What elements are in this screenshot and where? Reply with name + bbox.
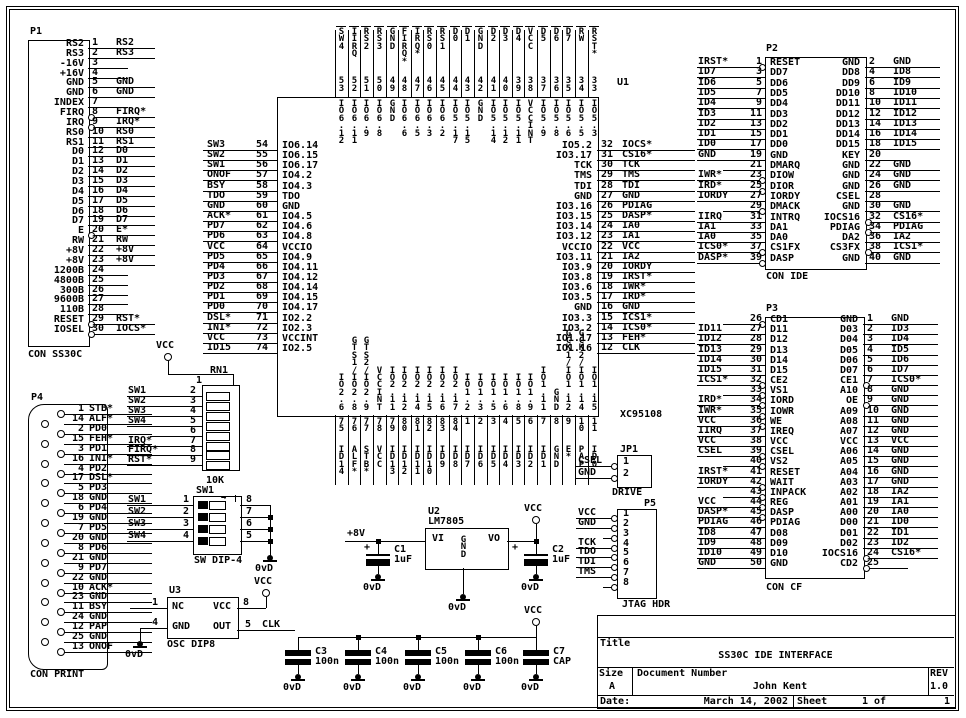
document-number-value: John Kent [632,682,928,692]
p5-pin-net: TMS [578,567,596,577]
rn1-resistor [206,442,230,451]
ground-net-label: 0vD [255,564,273,574]
u1-bottom-pin-net: I D 9 [437,447,448,469]
sw1-switch-actuator [198,501,208,509]
rn1-pin-net: RST* [128,455,152,465]
p3-refdes: P3 [766,304,778,314]
u3-gnd-wire [140,628,167,629]
p4-pin-hole [41,579,49,587]
p5-pin-bubble [611,515,618,522]
p1-pin-net: +8V [116,255,134,265]
p2-right-net: GND [893,170,911,180]
vcc-net-label: VCC [156,341,174,351]
p2-left-net: IWR* [698,170,722,180]
u3-vcc-pin-name: VCC [197,602,231,612]
p4-pin-hole [41,499,49,507]
u1-top-pin-name: I O 5 . 6 [563,101,574,138]
u1-right-pin-name: TMS [520,171,592,181]
jp1-pin-number: 2 [623,469,629,479]
u2-input-wire [345,541,425,542]
p2-left-net: IORDY [698,191,728,201]
u1-top-pin-number: 4 3 [462,78,473,93]
u1-bottom-pin-name: I O 1 . 1 1 [538,368,549,412]
u1-bottom-pin-number: 1 1 [589,419,600,434]
p2-left-pin-number: 17 [736,139,762,149]
u1-top-pin-number: 4 5 [437,78,448,93]
jp1-part-name: DRIVE [612,488,642,498]
u1-top-pin-net: S W 4 [336,29,347,51]
clk-net-label: CLK [262,620,280,630]
cap-lead [358,637,359,650]
ground-net-label: 0vD [521,583,539,593]
u1-bottom-pin-name: V C C I N T [374,368,385,412]
u1-top-pin-number: 4 6 [424,78,435,93]
u1-right-pin-net: TMS [622,170,640,180]
cap-plate [405,650,431,656]
p4-pin-hole [41,638,49,646]
u1-right-pin-number: 29 [601,170,613,180]
sw1-left-pin-number: 4 [173,531,189,541]
p1-pin-net: GND [116,87,134,97]
u1-top-pin-number: 3 3 [589,78,600,93]
rn1-pin-number: 9 [180,455,196,465]
ground-symbol-bar [471,679,485,681]
sw1-part-name: SW DIP-4 [194,556,242,566]
p2-right-pin-number: 18 [869,139,881,149]
u2-vo-pin-name: VO [468,534,500,544]
cap-value: CAP [553,657,571,667]
vcc-symbol [262,589,270,597]
u1-top-pin-net: R S 2 [361,29,372,51]
p5-pin-number: 8 [623,578,629,588]
cap-lead [418,665,419,674]
u1-left-pin-number: 74 [240,343,268,353]
u2-gnd-pin-name: G N D [458,537,469,559]
rn1-vcc-wire [168,361,169,374]
u1-right-pin-wire [597,353,695,354]
jp1-pin-bubble [611,475,618,482]
c1-value: 1uF [394,555,412,565]
u1-right-pin-number: 16 [601,302,613,312]
sw1-switch-slot [209,501,226,510]
u3-part-name: OSC DIP8 [167,640,215,650]
u1-right-pin-number: 23 [601,231,613,241]
u1-left-pin-name: IO4.17 [282,303,318,313]
p2-left-bubble [759,260,766,267]
sw1-right-wire [240,541,270,542]
ground-symbol-bar [263,560,277,562]
u1-top-pin-name: I O 5 . 5 [576,101,587,138]
u1-left-pin-wire [203,353,277,354]
p2-left-pin-name: DD7 [770,68,788,78]
p2-right-pin-name: DD8 [788,68,860,78]
sw1-left-pin-number: 1 [173,495,189,505]
u3-out-wire [237,630,295,631]
p4-pin-number: 13 [66,642,84,652]
p2-right-pin-number: 30 [869,201,881,211]
u3-gnd-pin-name: GND [172,622,190,632]
p1-pin-internal-name: D7 [30,216,84,226]
u1-bottom-pin-net: I D 1 1 [412,447,423,477]
sw1-switch-slot [209,525,226,534]
p1-pin-net: RS3 [116,48,134,58]
u1-top-pin-net: F I R Q * [399,29,410,66]
u1-right-pin-number: 12 [601,343,613,353]
p2-right-pin-number: 40 [869,253,881,263]
cap-lead [536,665,537,674]
ground-net-label: 0vD [363,583,381,593]
p2-left-net: ID0 [698,139,716,149]
u1-bottom-pin-number: 5 [513,419,524,426]
u1-top-pin-name: I O 5 . 1 5 [462,101,473,145]
p1-pin-wire [88,334,155,335]
p2-right-pin-name: GND [788,202,860,212]
plus8v-net-label: +8V [347,529,365,539]
rn1-resistor [206,412,230,421]
vcc-net-label: VCC [254,577,272,587]
sheet-title: SS30C IDE INTERFACE [597,651,954,661]
rn1-resistor [206,451,230,460]
rn1-pin-wire [127,465,202,466]
u1-bottom-pin-name: I O 2 . 1 1 [387,368,398,412]
p2-right-pin-name: GND [788,254,860,264]
ground-symbol-bar [529,679,543,681]
u1-top-pin-net: R S T * [589,29,600,59]
p3-right-bubble [863,565,870,572]
p2-right-net: GND [893,253,911,263]
p2-right-net: GND [893,201,911,211]
p4-pin-hole [41,618,49,626]
sheet-value: 1 of [862,697,886,707]
u1-top-pin-net: D 1 [462,29,473,44]
rn1-pin-net: SW4 [128,416,146,426]
u1-bottom-pin-name: I O 1 . 8 [513,375,524,412]
p2-right-net: ID11 [893,98,917,108]
u1-top-pin-net: D 0 [450,29,461,44]
p3-right-net: CS16* [891,548,921,558]
u1-top-pin-number: 4 7 [412,78,423,93]
ground-symbol-bar [456,599,470,601]
u1-left-pin-name: IO4.8 [282,232,312,242]
title-block-line [793,695,794,707]
title-block-line [597,637,954,638]
c1-lead [378,541,379,554]
sw1-right-wire [240,517,270,518]
u1-bottom-pin-net: I D 8 [450,447,461,469]
p3-left-net: PDIAG [698,517,728,527]
u1-right-pin-net: CLK [622,343,640,353]
p1-refdes: P1 [30,27,42,37]
p1-pin-wire [88,58,155,59]
ground-symbol-bar [529,579,543,581]
rn1-vcc-wire [233,374,234,385]
u1-bottom-pin-number: 7 9 [387,419,398,434]
u1-top-pin-number: 5 3 [336,78,347,93]
sw1-pin-net: SW3 [128,519,146,529]
ground-net-label: 0vD [283,683,301,693]
u1-left-pin-net: PD6 [207,231,225,241]
c2-polarity-mark: + [512,543,518,553]
vcc-net-label: VCC [524,606,542,616]
vcc-symbol [164,353,172,361]
p3-left-pin-number: 40 [736,456,762,466]
p3-right-pin-number: 3 [867,334,873,344]
u1-bottom-pin-number: 8 1 [412,419,423,434]
u1-bottom-pin-name: I O 1 . 9 [525,375,536,412]
u1-bottom-pin-name: I O 1 . 5 [488,375,499,412]
p3-right-pin-name: A05 [786,457,858,467]
cap-value: 100n [375,657,399,667]
schematic-canvas: Title SS30C IDE INTERFACE Size A Documen… [0,0,966,718]
sw1-switch-actuator [198,537,208,545]
u2-vi-pin-name: VI [432,534,444,544]
p3-right-net: ID4 [891,334,909,344]
p5-pin-bubble [611,525,618,532]
p2-left-pin-number: 9 [736,98,762,108]
ground-net-label: 0vD [521,683,539,693]
c1-plate [366,554,390,556]
u1-bottom-pin-net: I D 3 [513,447,524,469]
u1-bottom-pin-net: I D 6 [475,447,486,469]
u3-pin-number: 1 [144,598,158,608]
p2-left-pin-name: DD4 [770,99,788,109]
u1-bottom-pin-net: I D 5 [488,447,499,469]
u1-left-pin-net: ID15 [207,343,231,353]
u1-top-pin-number: 4 2 [475,78,486,93]
cap-lead [418,637,419,650]
p3-left-net: ICS1* [698,375,728,385]
u1-top-pin-number: 3 8 [525,78,536,93]
vcc-symbol [532,618,540,626]
ground-symbol-bar [133,646,147,648]
u1-bottom-pin-net: I D 4 [500,447,511,469]
bypass-vcc-wire [536,626,537,637]
p2-right-pin-number: 10 [869,98,881,108]
ground-symbol-bar [291,679,305,681]
p2-refdes: P2 [766,44,778,54]
ground-symbol-bar [351,679,365,681]
u1-top-pin-name: I O 5 . 9 [538,101,549,138]
u3-nc-pin-name: NC [172,602,184,612]
cap-lead [358,665,359,674]
rev-value: 1.0 [930,682,948,692]
cap-plate [285,650,311,656]
p2-right-net: ID15 [893,139,917,149]
jp1-pin-number: 1 [623,457,629,467]
sw1-gnd-bus [270,505,271,557]
p3-left-pin-number: 34 [736,395,762,405]
u1-bottom-pin-name: I O 1 . 1 5 [589,368,600,412]
c1-polarity-mark: + [364,543,370,553]
u1-bottom-pin-number: 7 6 [349,419,360,434]
u1-right-pin-net: IA1 [622,231,640,241]
p2-part-name: CON IDE [766,272,808,282]
c2-lead [536,541,537,554]
u1-bottom-pin-number: 6 [525,419,536,426]
p1-pin-internal-name: IOSEL [30,325,84,335]
vcc-net-label: VCC [524,504,542,514]
sw1-pin-net: SW2 [128,507,146,517]
p5-part-name: JTAG HDR [622,600,670,610]
p2-right-pin-name: DD11 [788,99,860,109]
dip-on-arrow-bar [235,495,236,502]
u1-top-pin-number: 3 9 [513,78,524,93]
u1-top-pin-name: I O 5 . 1 1 [513,101,524,145]
p3-left-wire [697,568,765,569]
u1-top-pin-net: D 2 [488,29,499,44]
u1-bottom-pin-name: I O 2 . 1 7 [450,368,461,412]
ground-net-label: 0vD [125,650,143,660]
u1-bottom-pin-number: 8 2 [424,419,435,434]
p5-pin-bubble [611,554,618,561]
cap-lead [478,665,479,674]
p2-left-pin-number: 3 [736,67,762,77]
date-value: March 14, 2002 [640,697,788,707]
u2-gnd-wire [463,568,464,594]
u1-bottom-pin-number: 8 [551,419,562,426]
p4-pin-hole [41,539,49,547]
p3-right-pin-name: CD2 [786,559,858,569]
u1-bottom-pin-net: I D 1 4 [336,447,347,477]
u1-top-pin-number: 5 1 [361,78,372,93]
jp1-pin-bubble [611,463,618,470]
p4-refdes: P4 [31,393,43,403]
u1-bottom-pin-name: I O 2 . 6 [336,375,347,412]
p3-right-pin-name: D00 [786,518,858,528]
u1-top-pin-net: R S 3 [374,29,385,51]
u1-bottom-pin-net: I D 2 [525,447,536,469]
u1-top-pin-name: V C C I N T [525,101,536,145]
p3-left-net: IORDY [698,477,728,487]
p2-right-wire [865,263,940,264]
p3-left-net: CSEL [698,446,722,456]
rn1-resistor [206,432,230,441]
c1-lead [378,566,379,574]
u1-top-pin-name: I O 6 . 3 [424,101,435,138]
p3-right-net: ID0 [891,517,909,527]
u1-bottom-pin-number: 2 [475,419,486,426]
sw1-right-pin-number: 6 [246,519,252,529]
u1-top-pin-net: I I R Q [349,29,360,59]
u1-top-pin-name: I O 5 . 3 [589,101,600,138]
u1-top-pin-name: I O 6 . 2 [437,101,448,138]
p2-right-net: GND [893,181,911,191]
u1-bottom-pin-number: 9 [563,419,574,426]
p4-pin-hole [41,479,49,487]
u1-top-pin-net: D 4 [513,29,524,44]
sw1-switch-slot [209,537,226,546]
p3-right-pin-name: OE [786,396,858,406]
p2-right-pin-number: 4 [869,67,875,77]
u1-top-pin-net: R W [576,29,587,44]
rn1-resistor [206,402,230,411]
p3-part-name: CON CF [766,583,802,593]
u1-top-pin-number: 3 4 [576,78,587,93]
p4-pin-hole [41,519,49,527]
p4-pin-hole [41,598,49,606]
u1-right-pin-net: GND [622,302,640,312]
p2-left-wire [697,263,765,264]
u1-bottom-pin-number: 1 [462,419,473,426]
p2-left-net: ID4 [698,98,716,108]
sw1-switch-actuator [198,513,208,521]
u1-top-pin-name: I O 5 . 8 [551,101,562,138]
u1-top-pin-net: D 6 [551,29,562,44]
cap-lead [478,637,479,650]
u1-top-pin-number: 4 8 [399,78,410,93]
sw1-pin-net: SW1 [128,495,146,505]
p3-right-pin-number: 21 [867,517,879,527]
u1-bottom-pin-name: G C K 1 / I O 1 . 1 2 [563,331,574,412]
p5-pin-bubble [611,574,618,581]
u3-pin-number: 4 [144,618,158,628]
u1-top-pin-net: D 5 [538,29,549,44]
u1-left-pin-net: ONOF [207,170,231,180]
p3-left-net: GND [698,558,716,568]
sheet-label: Sheet [797,697,827,707]
p2-left-net: GND [698,150,716,160]
p5-pin-bubble [611,584,618,591]
u1-top-pin-name: G N D [475,101,486,123]
u1-bottom-pin-name: G C K 2 / I O 1 . 1 4 [576,331,587,412]
u1-bottom-pin-net: E * [563,447,574,462]
p5-pin-bubble [611,535,618,542]
sw1-right-wire [240,505,270,506]
p3-left-net: ID12 [698,334,722,344]
cap-lead [536,637,537,650]
u1-top-pin-net: G N D [387,29,398,51]
p5-pin-net: GND [578,518,596,528]
u1-bottom-pin-net: A L F * [349,447,360,477]
u1-bottom-pin-name: G T S 1 / I O 2 . 8 [349,338,360,412]
u3-vcc-wire [266,597,267,608]
u3-out-pin-name: OUT [197,622,231,632]
u3-pin-number: 5 [245,620,251,630]
sw1-right-wire [240,529,270,530]
ground-symbol-bar [411,679,425,681]
u1-left-pin-name: IO2.5 [282,344,312,354]
u1-bottom-pin-number: 7 7 [361,419,372,434]
u1-bottom-pin-net: V C C [374,447,385,469]
u1-bottom-pin-number: 3 [488,419,499,426]
u1-top-pin-name: I O 6 . 5 [412,101,423,138]
u1-top-pin-number: 4 1 [488,78,499,93]
u1-top-pin-net: V C C [525,29,536,51]
cap-plate [465,650,491,656]
u1-top-pin-net: R S 0 [424,29,435,51]
p4-pin-hole [41,460,49,468]
u1-top-pin-number: 3 7 [538,78,549,93]
u1-bottom-pin-net: G N D [551,447,562,469]
u1-bottom-pin-name: G N D [551,390,562,412]
p3-left-pin-number: 46 [736,517,762,527]
u1-top-pin-name: I O 6 . 1 1 [349,101,360,145]
p2-left-pin-number: 37 [736,242,762,252]
p2-right-pin-name: GND [788,171,860,181]
p5-pin-bubble [611,564,618,571]
rev-label: REV [930,669,948,679]
u1-bottom-pin-number: 4 [500,419,511,426]
sw1-refdes: SW1 [196,486,214,496]
p1-part-name: CON SS30C [28,350,82,360]
u3-refdes: U3 [169,586,181,596]
vcc-symbol [532,516,540,524]
p3-right-pin-number: 15 [867,456,879,466]
u1-bottom-pin-net: I D 7 [462,447,473,469]
sw1-left-pin-number: 2 [173,507,189,517]
u1-bottom-pin-name: I O 1 . 3 [475,375,486,412]
jp1-refdes: JP1 [620,445,638,455]
